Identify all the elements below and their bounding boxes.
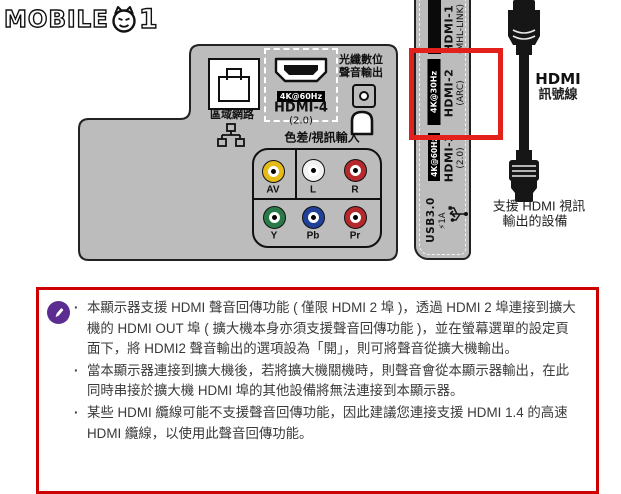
av-jack — [262, 160, 285, 183]
jack-pin — [308, 165, 319, 176]
component-jack-panel: AV L R Y Pb Pr — [252, 148, 382, 248]
av-jack-label: AV — [266, 185, 279, 196]
jack-divider-horizontal — [254, 198, 380, 200]
hdmi2-highlight-box — [409, 48, 503, 140]
pr-jack-label: Pr — [350, 231, 361, 242]
hdmi-connector-icon — [273, 56, 329, 84]
jack-divider-vertical — [295, 150, 297, 198]
jack-pin — [308, 212, 319, 223]
l-audio-jack — [302, 159, 325, 182]
l-audio-jack-label: L — [310, 185, 316, 196]
hdmi3-label: HDMI-3 — [443, 134, 456, 183]
note-pencil-icon — [47, 301, 70, 324]
component-title: 色差/視訊輸入 — [284, 129, 359, 146]
hdmi-cable-illustration — [500, 0, 550, 206]
logo-text: MOBILE — [4, 7, 109, 33]
pr-jack — [344, 206, 367, 229]
hdmi4-block: 4K@60Hz HDMI-4 (2.0) — [264, 48, 338, 122]
pb-jack-label: Pb — [307, 231, 320, 242]
jack-pin — [268, 166, 279, 177]
optical-label-line2: 聲音輸出 — [339, 64, 383, 80]
mobile01-logo: MOBILE 1 — [4, 4, 159, 35]
hdmi3-sublabel: (2.0) — [456, 147, 466, 168]
logo-one: 1 — [139, 4, 159, 35]
hdmi4-version: (2.0) — [289, 116, 313, 127]
hdmi4-label: HDMI-4 — [274, 101, 328, 116]
r-audio-jack-label: R — [351, 185, 358, 196]
hdmi1-label: HDMI-1 — [443, 5, 456, 54]
jack-pin — [269, 212, 280, 223]
note-bullet: 本顯示器支援 HDMI 聲音回傳功能 ( 僅限 HDMI 2 埠 )，透過 HD… — [87, 298, 582, 360]
optical-mini-jack-icon — [352, 84, 376, 108]
cable-label-line2: 訊號線 — [538, 84, 577, 103]
hdmi1-sublabel: (MHL-LINK) — [456, 4, 466, 54]
hdmi1-port-slot — [428, 0, 441, 54]
rj45-tab — [226, 68, 242, 80]
hdmi3-badge: 4K@60Hz — [428, 133, 440, 181]
y-jack-label: Y — [271, 231, 278, 242]
screenshot-canvas: MOBILE 1 區域網路 4K@60Hz HDMI-4 (2.0) — [0, 0, 621, 494]
note-bullet: 某些 HDMI 纜線可能不支援聲音回傳功能，因此建議您連接支援 HDMI 1.4… — [87, 403, 582, 444]
network-icon — [217, 123, 245, 149]
jack-pin — [350, 212, 361, 223]
lan-label: 區域網路 — [210, 106, 254, 122]
usb-icon — [446, 204, 468, 224]
ethernet-port — [208, 58, 260, 110]
note-box: 本顯示器支援 HDMI 聲音回傳功能 ( 僅限 HDMI 2 埠 )，透過 HD… — [36, 287, 599, 494]
note-bullet-list: 本顯示器支援 HDMI 聲音回傳功能 ( 僅限 HDMI 2 埠 )，透過 HD… — [39, 290, 596, 451]
cat-face-icon — [110, 5, 138, 35]
y-jack — [263, 206, 286, 229]
pb-jack — [302, 206, 325, 229]
note-bullet: 當本顯示器連接到擴大機後，若將擴大機關機時，則聲音會從本顯示器輸出，在此同時串接… — [87, 361, 582, 402]
usb-label: USB3.0 — [425, 197, 437, 243]
device-label-line2: 輸出的設備 — [502, 211, 567, 230]
jack-pin — [350, 165, 361, 176]
optical-mini-jack-hole — [359, 91, 369, 101]
r-audio-jack — [344, 159, 367, 182]
